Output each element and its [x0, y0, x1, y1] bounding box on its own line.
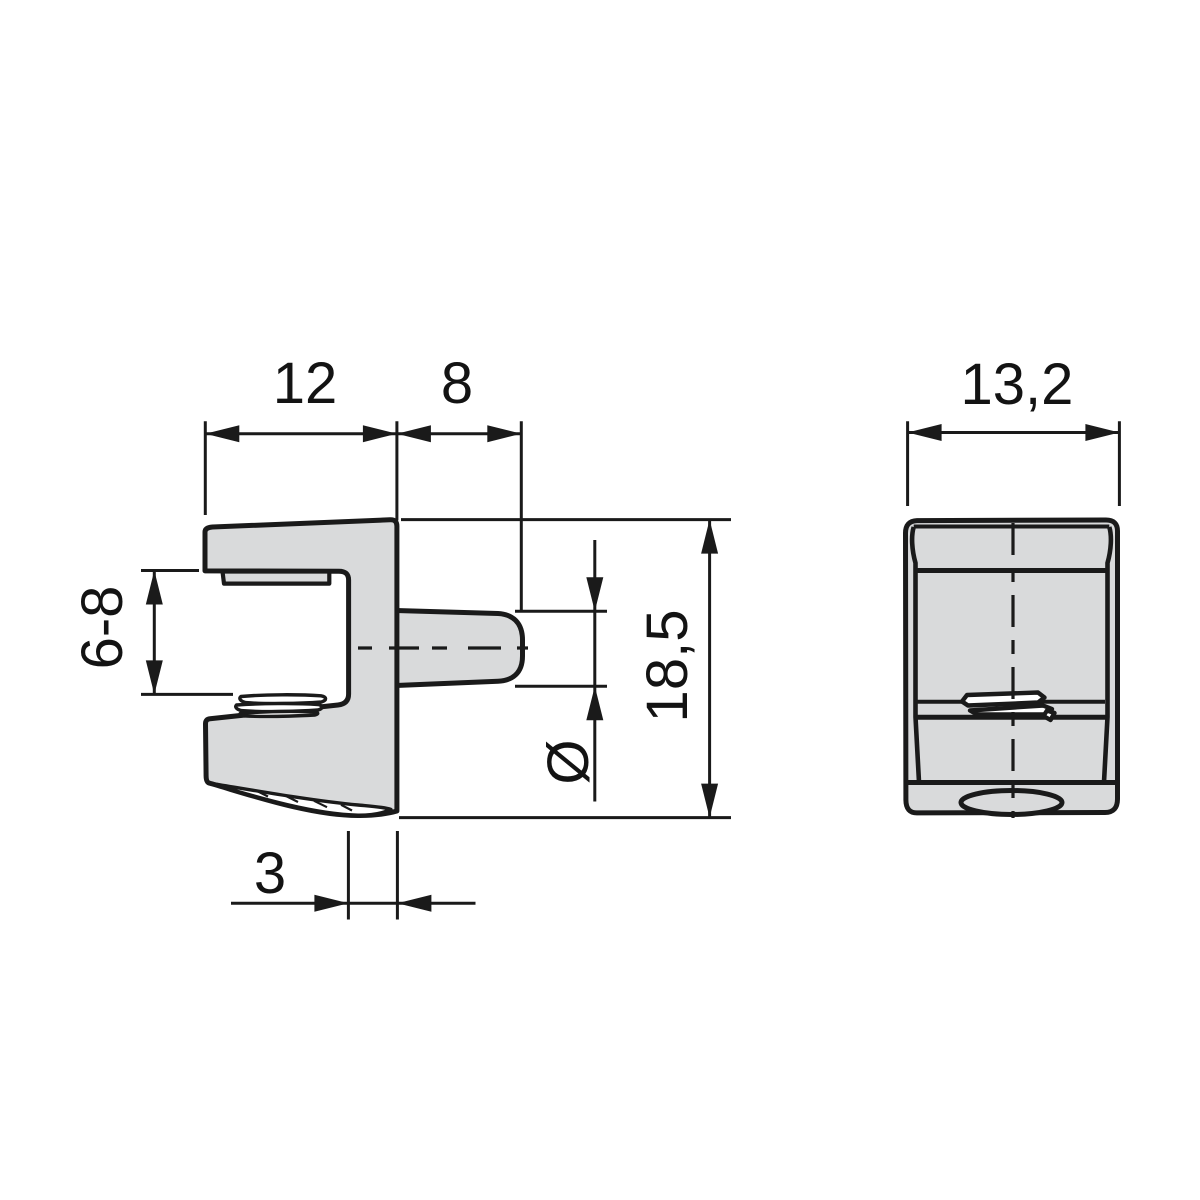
svg-text:3: 3	[254, 841, 286, 906]
svg-text:12: 12	[273, 351, 338, 416]
svg-text:8: 8	[441, 351, 473, 416]
svg-text:Ø: Ø	[536, 739, 601, 784]
svg-text:18,5: 18,5	[635, 610, 700, 723]
svg-text:13,2: 13,2	[961, 352, 1074, 417]
svg-text:6-8: 6-8	[70, 586, 135, 670]
